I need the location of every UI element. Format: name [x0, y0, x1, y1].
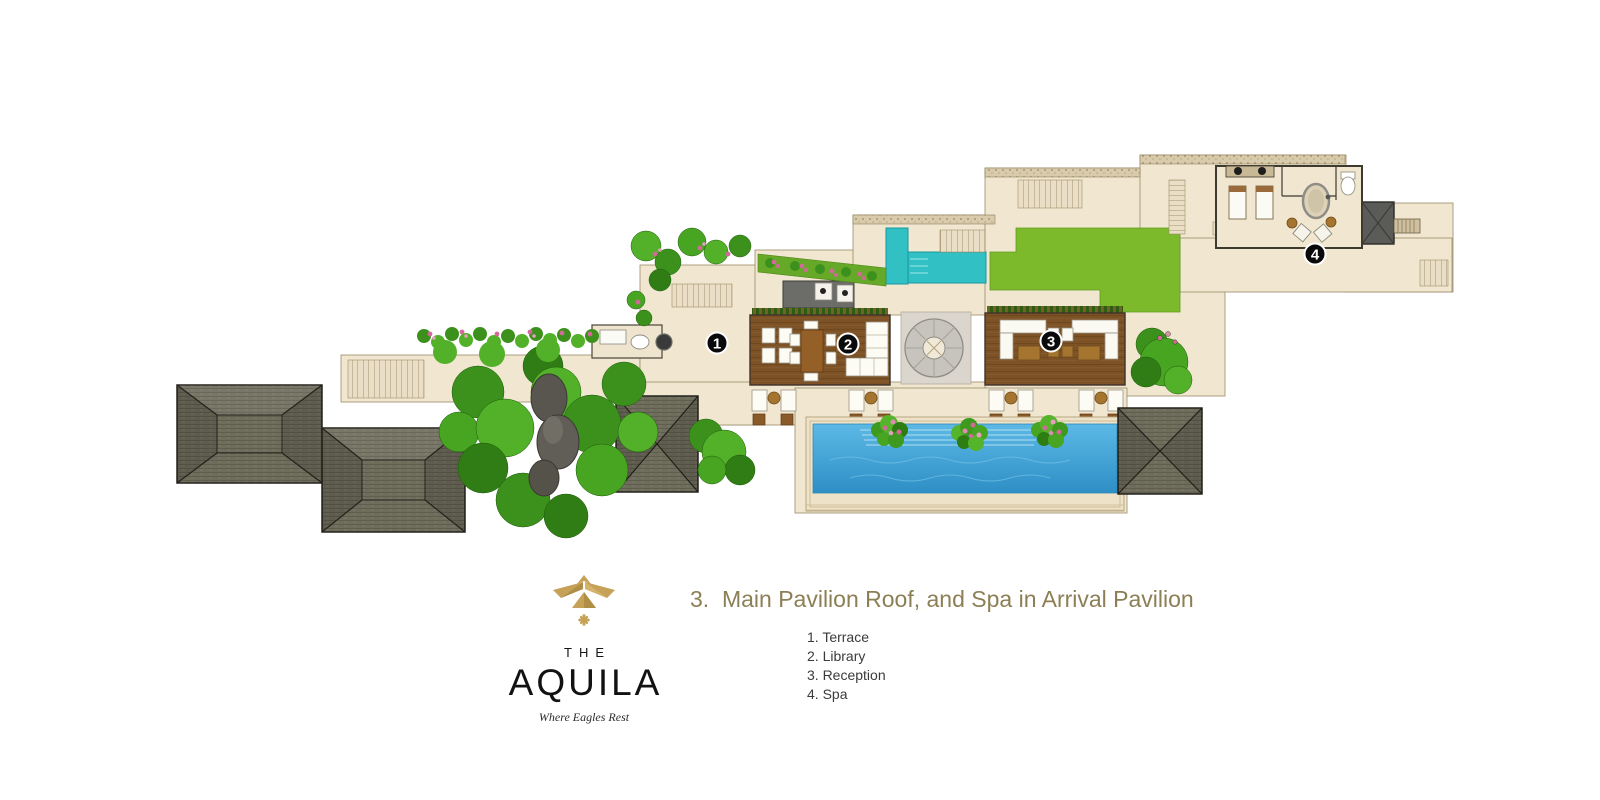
stone-bath	[1303, 184, 1330, 218]
logo-name: AQUILA	[504, 662, 664, 704]
spa-entry-roof	[1362, 202, 1394, 244]
floor-plan: 1 2 3 4	[0, 0, 1600, 800]
marker-4-badge: 4	[1305, 244, 1326, 265]
aquila-eagle-icon	[552, 575, 616, 631]
marker-1-number: 1	[713, 336, 721, 353]
small-tree	[689, 419, 755, 485]
entry-bridge	[1394, 219, 1420, 233]
spiral-staircase	[901, 312, 971, 384]
plan-legend: 1. Terrace 2. Library 3. Reception 4. Sp…	[807, 628, 886, 704]
brand-logo: THE AQUILA Where Eagles Rest	[504, 575, 664, 725]
marker-2-number: 2	[844, 337, 852, 354]
legend-item-library: 2. Library	[807, 647, 886, 666]
plan-title: 3. Main Pavilion Roof, and Spa in Arriva…	[690, 586, 1194, 613]
rosette-icon	[578, 614, 589, 625]
logo-the: THE	[504, 645, 664, 660]
toilet	[1341, 172, 1355, 195]
marker-3-badge: 3	[1041, 331, 1062, 352]
marker-2-badge: 2	[838, 334, 859, 355]
page: 1 2 3 4 THE AQUILA Where Eagles Rest 3. …	[0, 0, 1600, 800]
legend-item-terrace: 1. Terrace	[807, 628, 886, 647]
pantry	[783, 281, 854, 308]
powder-room	[592, 325, 672, 358]
hip-roof-poolside	[1118, 408, 1202, 494]
legend-item-reception: 3. Reception	[807, 666, 886, 685]
hip-roof-left	[177, 385, 322, 483]
spa-rooms	[1216, 166, 1362, 248]
marker-4-number: 4	[1311, 247, 1320, 264]
marker-1-badge: 1	[707, 333, 728, 354]
legend-item-spa: 4. Spa	[807, 685, 886, 704]
logo-tagline: Where Eagles Rest	[504, 710, 664, 725]
marker-3-number: 3	[1047, 334, 1055, 351]
